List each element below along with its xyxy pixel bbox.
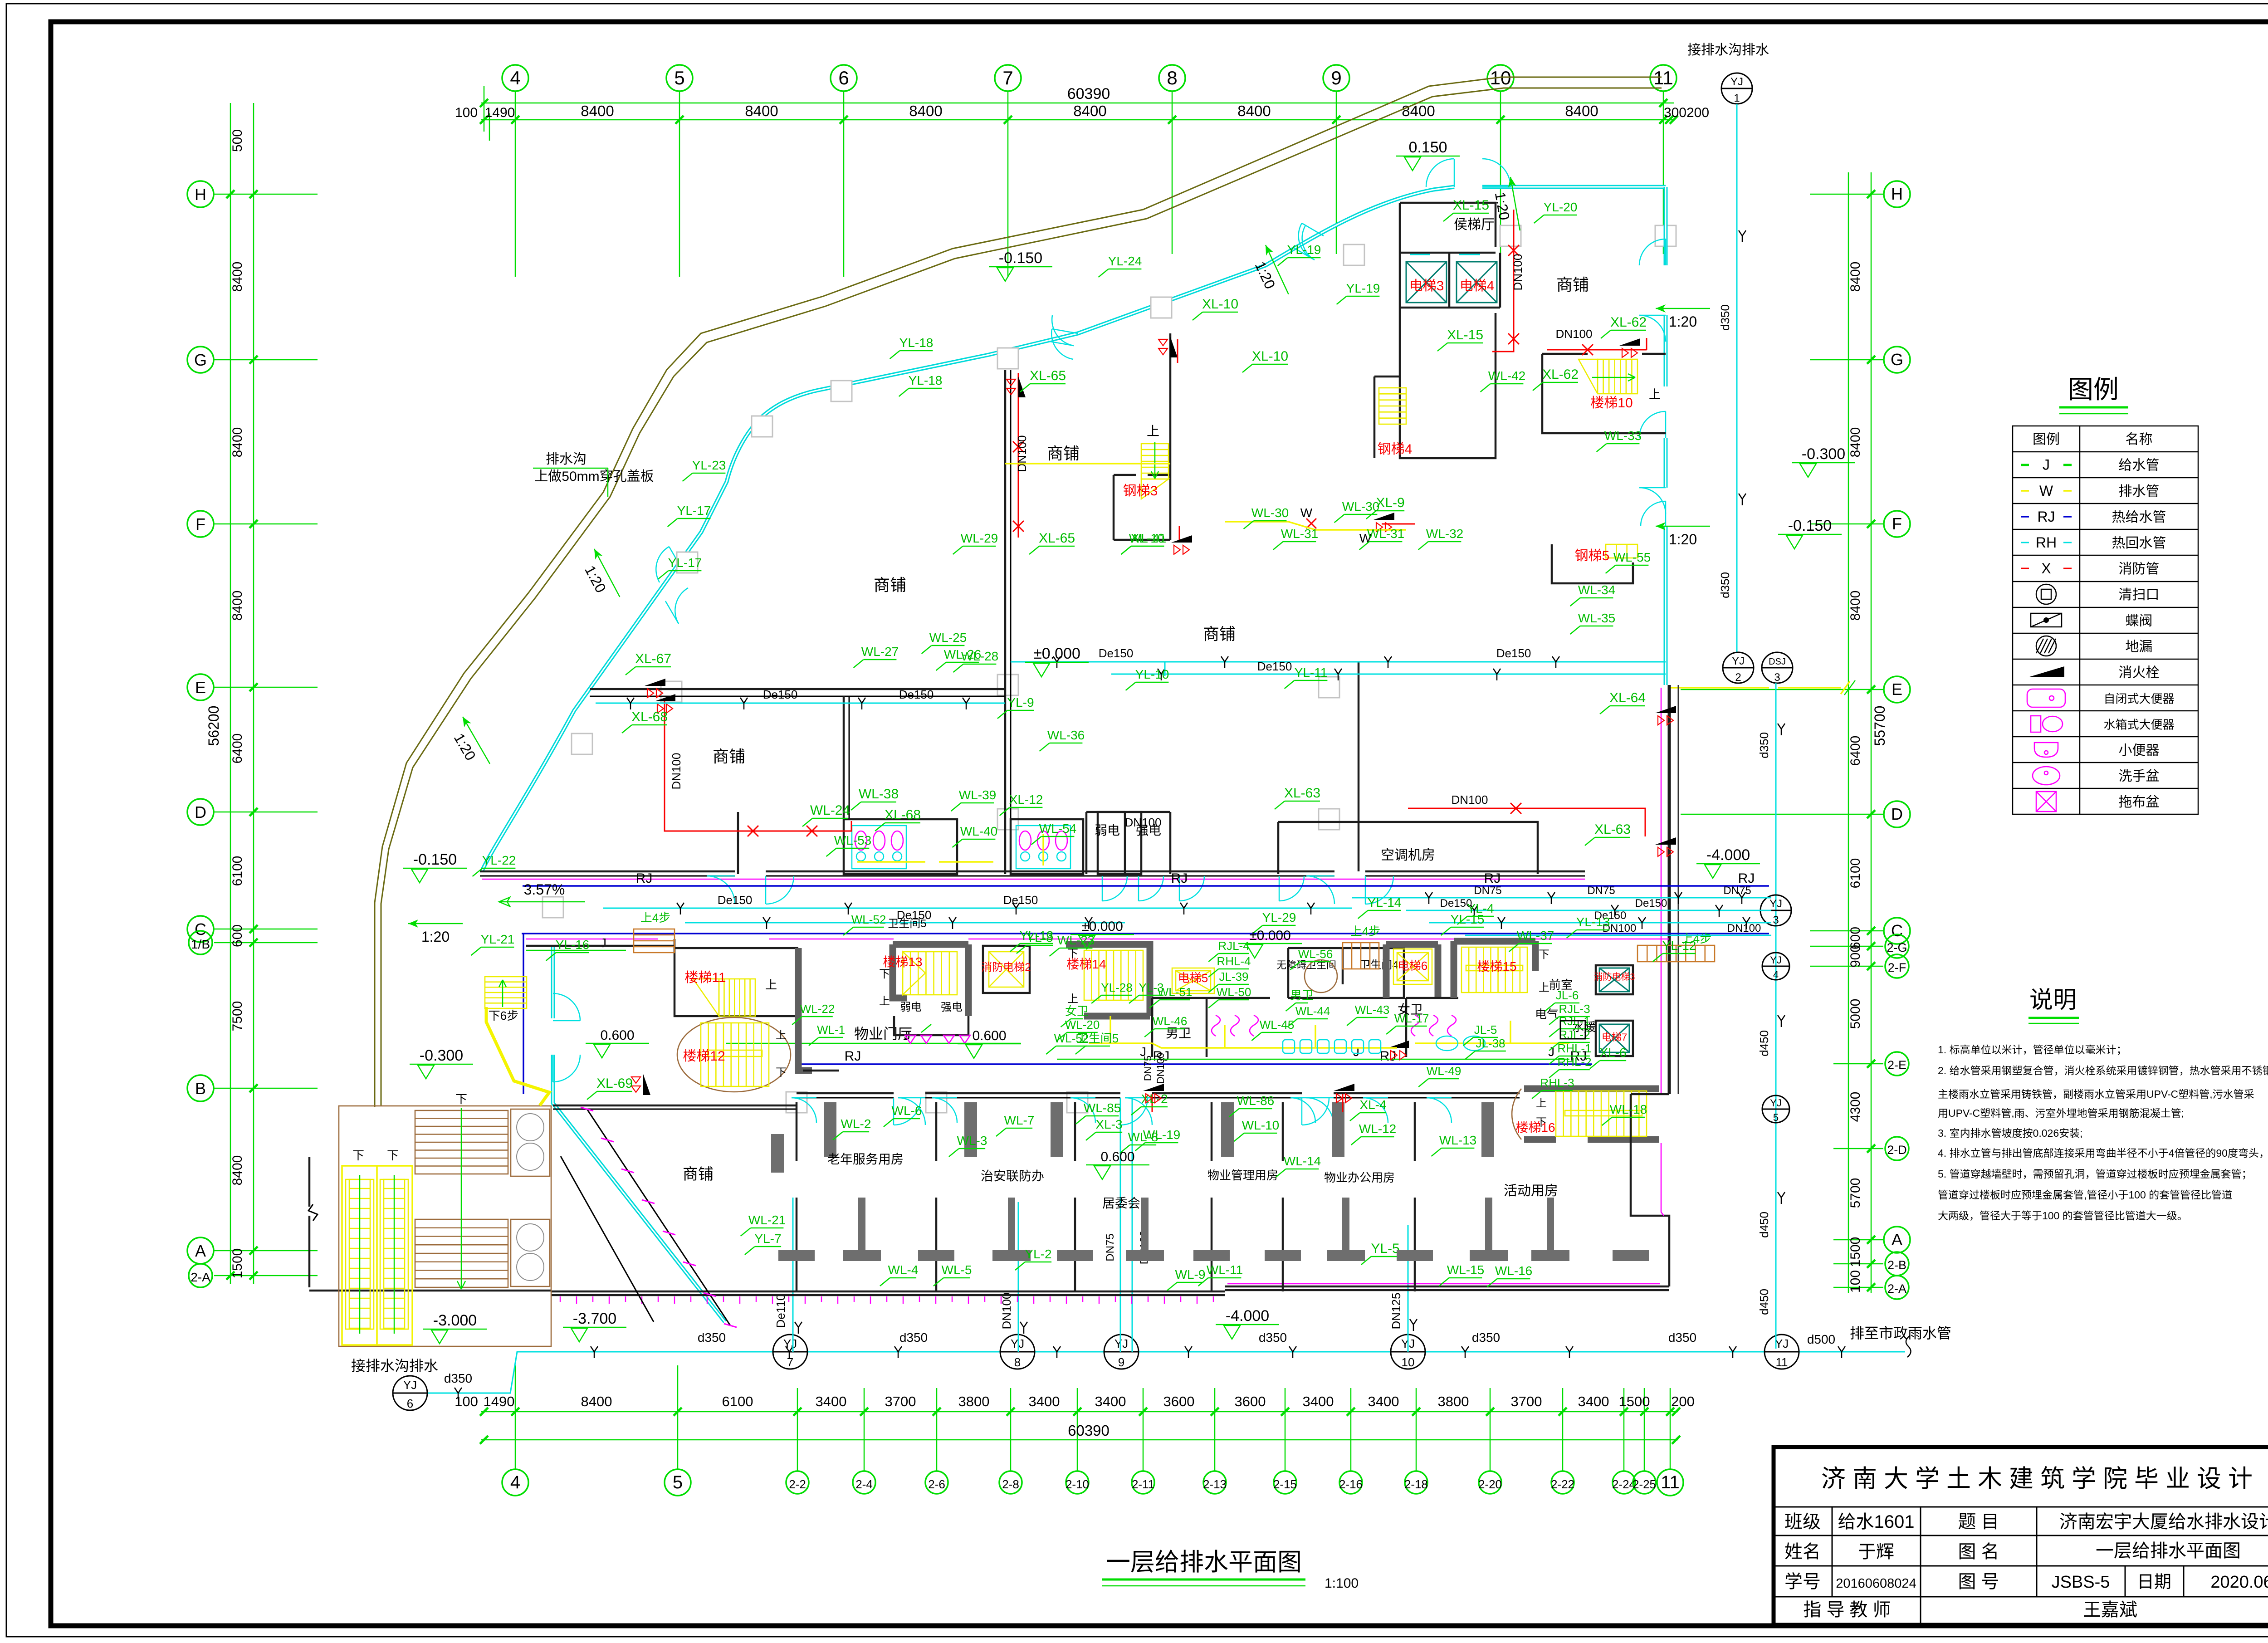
svg-text:DN100: DN100 — [1000, 1293, 1013, 1330]
svg-text:YL-4: YL-4 — [1467, 901, 1494, 915]
svg-text:XL-68: XL-68 — [885, 807, 921, 822]
svg-text:WL-51: WL-51 — [1158, 985, 1193, 999]
svg-text:3400: 3400 — [1368, 1394, 1399, 1409]
svg-text:WL-86: WL-86 — [1237, 1094, 1274, 1108]
svg-text:G: G — [194, 351, 207, 369]
svg-text:DN75: DN75 — [1142, 1056, 1154, 1081]
svg-text:d350: d350 — [1259, 1330, 1287, 1345]
svg-text:JL-39: JL-39 — [1219, 970, 1248, 983]
svg-text:6100: 6100 — [1848, 858, 1863, 889]
svg-text:9: 9 — [1118, 1355, 1124, 1369]
svg-text:WL-8: WL-8 — [1128, 1130, 1158, 1144]
svg-text:YL-18: YL-18 — [899, 336, 934, 350]
svg-text:WL-2: WL-2 — [841, 1117, 871, 1131]
svg-text:WL-11: WL-11 — [1207, 1263, 1243, 1277]
svg-text:4300: 4300 — [1848, 1092, 1863, 1122]
svg-text:WL-10: WL-10 — [1242, 1118, 1279, 1132]
svg-text:RJ: RJ — [2037, 509, 2055, 525]
svg-text:YL-18: YL-18 — [909, 373, 943, 387]
svg-text:0.150: 0.150 — [1408, 139, 1447, 156]
svg-text:d350: d350 — [1757, 732, 1771, 758]
svg-text:JL-6: JL-6 — [1556, 988, 1579, 1002]
svg-text:女卫: 女卫 — [1065, 1004, 1089, 1018]
svg-text:下: 下 — [455, 1092, 467, 1106]
svg-text:YL-29: YL-29 — [1262, 910, 1296, 924]
svg-text:排至市政雨水管: 排至市政雨水管 — [1850, 1325, 1951, 1341]
svg-text:3400: 3400 — [816, 1394, 847, 1409]
svg-text:XL-65: XL-65 — [1030, 368, 1066, 383]
svg-text:电梯6: 电梯6 — [1398, 959, 1427, 973]
svg-text:下: 下 — [879, 968, 890, 980]
svg-text:下: 下 — [1539, 949, 1549, 961]
svg-text:De150: De150 — [1003, 893, 1038, 907]
svg-text:8: 8 — [1014, 1355, 1021, 1369]
svg-text:消火栓: 消火栓 — [2119, 665, 2160, 680]
svg-text:DSJ: DSJ — [1769, 657, 1786, 667]
svg-text:居委会: 居委会 — [1102, 1196, 1140, 1210]
svg-text:消防电梯2: 消防电梯2 — [981, 961, 1031, 973]
svg-text:YL-28: YL-28 — [1101, 981, 1132, 994]
svg-text:De150: De150 — [718, 893, 753, 907]
svg-text:WL-9: WL-9 — [1175, 1267, 1206, 1281]
svg-text:管道穿过楼板时应预埋金属套管,管径小于100 的套管管径比管: 管道穿过楼板时应预埋金属套管,管径小于100 的套管管径比管道 — [1938, 1189, 2232, 1201]
svg-text:DN100: DN100 — [1155, 1053, 1166, 1084]
svg-text:RH: RH — [2036, 534, 2057, 551]
svg-text:上: 上 — [1147, 424, 1159, 438]
svg-text:-0.150: -0.150 — [1788, 517, 1832, 534]
svg-text:钢梯5: 钢梯5 — [1575, 548, 1610, 563]
svg-text:WL-15: WL-15 — [1447, 1263, 1484, 1277]
svg-text:WL-3: WL-3 — [957, 1134, 987, 1148]
svg-text:上: 上 — [1649, 387, 1661, 401]
svg-text:WL-39: WL-39 — [959, 788, 996, 802]
svg-text:100: 100 — [1848, 1270, 1863, 1293]
svg-text:2-18: 2-18 — [1404, 1477, 1428, 1491]
svg-text:YL-12: YL-12 — [1662, 939, 1696, 953]
svg-text:YL-20: YL-20 — [1544, 200, 1578, 214]
svg-text:-0.150: -0.150 — [413, 851, 457, 868]
svg-text:上: 上 — [765, 978, 777, 992]
svg-text:楼梯15: 楼梯15 — [1477, 959, 1516, 973]
svg-text:6: 6 — [838, 67, 849, 88]
svg-text:De150: De150 — [763, 688, 798, 701]
svg-text:8400: 8400 — [230, 427, 245, 458]
svg-text:3: 3 — [1773, 914, 1779, 926]
svg-text:电梯3: 电梯3 — [1409, 279, 1444, 293]
svg-text:卫生间5: 卫生间5 — [888, 918, 926, 930]
svg-text:WL-36: WL-36 — [1047, 728, 1085, 742]
svg-text:物业办公用房: 物业办公用房 — [1324, 1171, 1395, 1184]
svg-text:男卫: 男卫 — [1290, 988, 1314, 1002]
svg-text:WL-43: WL-43 — [1355, 1003, 1390, 1017]
svg-text:De150: De150 — [1099, 646, 1134, 660]
svg-text:治安联防办: 治安联防办 — [981, 1169, 1044, 1183]
svg-text:姓名: 姓名 — [1784, 1542, 1821, 1562]
svg-text:DN100: DN100 — [1727, 922, 1761, 934]
svg-text:900: 900 — [1848, 945, 1863, 968]
svg-text:WL-26: WL-26 — [944, 647, 981, 661]
svg-text:±0.000: ±0.000 — [1033, 645, 1080, 662]
svg-text:DN75: DN75 — [1587, 885, 1615, 897]
svg-text:2-A: 2-A — [191, 1270, 210, 1284]
svg-text:WL-30: WL-30 — [1342, 499, 1379, 513]
svg-text:电梯5: 电梯5 — [1178, 971, 1208, 985]
svg-text:WL-35: WL-35 — [1578, 611, 1615, 625]
svg-text:De110: De110 — [774, 1294, 787, 1328]
svg-text:WL-38: WL-38 — [859, 787, 899, 802]
svg-text:5: 5 — [674, 67, 684, 88]
svg-text:1:100: 1:100 — [1325, 1576, 1359, 1591]
svg-text:RJ: RJ — [1380, 1049, 1397, 1064]
svg-text:XL-65: XL-65 — [1039, 531, 1075, 546]
svg-text:WL-5: WL-5 — [942, 1263, 972, 1277]
svg-text:上: 上 — [1536, 1097, 1547, 1110]
svg-text:J: J — [1353, 1045, 1359, 1059]
svg-text:De150: De150 — [1635, 897, 1667, 910]
svg-text:一层给排水平面图: 一层给排水平面图 — [1106, 1549, 1302, 1576]
svg-text:-0.300: -0.300 — [1802, 445, 1845, 463]
svg-text:F: F — [196, 515, 205, 533]
svg-text:8: 8 — [1167, 67, 1177, 88]
svg-text:8400: 8400 — [230, 1155, 245, 1186]
svg-text:1:20: 1:20 — [421, 929, 450, 945]
svg-text:3600: 3600 — [1163, 1394, 1195, 1409]
svg-text:9: 9 — [1331, 67, 1341, 88]
svg-text:W: W — [2039, 483, 2053, 499]
svg-text:卫生间5: 卫生间5 — [1077, 1032, 1119, 1045]
svg-text:3800: 3800 — [1438, 1394, 1469, 1409]
svg-text:2-11: 2-11 — [1132, 1477, 1154, 1491]
svg-text:8400: 8400 — [909, 103, 942, 119]
svg-text:d450: d450 — [1757, 1030, 1771, 1056]
svg-text:WL-1: WL-1 — [817, 1023, 845, 1037]
svg-text:6: 6 — [407, 1397, 413, 1410]
svg-text:7: 7 — [1002, 67, 1013, 88]
svg-text:RJ: RJ — [636, 871, 653, 886]
svg-text:A: A — [1892, 1230, 1902, 1249]
svg-text:WL-25: WL-25 — [929, 631, 967, 645]
svg-text:JL-5: JL-5 — [1474, 1023, 1497, 1037]
svg-text:WL-12: WL-12 — [1359, 1122, 1396, 1136]
svg-text:4: 4 — [510, 67, 520, 88]
svg-text:2-E: 2-E — [1887, 1058, 1906, 1072]
svg-text:6400: 6400 — [1848, 736, 1863, 766]
svg-text:物业管理用房: 物业管理用房 — [1207, 1169, 1278, 1182]
svg-text:YL-7: YL-7 — [754, 1232, 781, 1246]
svg-text:20160608024: 20160608024 — [1836, 1576, 1916, 1591]
svg-text:H: H — [195, 185, 206, 204]
svg-text:0.600: 0.600 — [1100, 1149, 1134, 1164]
svg-text:XL-10: XL-10 — [1252, 349, 1288, 364]
svg-text:日期: 日期 — [2137, 1573, 2171, 1592]
svg-text:1490: 1490 — [485, 105, 515, 120]
svg-text:YJ: YJ — [1730, 76, 1743, 88]
svg-text:3700: 3700 — [1511, 1394, 1542, 1409]
svg-text:0.600: 0.600 — [972, 1028, 1006, 1043]
svg-text:上: 上 — [879, 995, 890, 1007]
svg-text:XL-12: XL-12 — [1009, 792, 1043, 807]
svg-text:YL-13: YL-13 — [1576, 915, 1610, 929]
svg-text:RHL-3: RHL-3 — [1540, 1076, 1574, 1090]
svg-text:200: 200 — [1671, 1394, 1695, 1409]
svg-text:7500: 7500 — [230, 1001, 245, 1032]
svg-text:班级: 班级 — [1784, 1512, 1821, 1532]
svg-text:男卫: 男卫 — [1166, 1026, 1191, 1040]
svg-text:3700: 3700 — [885, 1394, 916, 1409]
svg-text:物业门厅: 物业门厅 — [854, 1026, 912, 1042]
svg-text:d350: d350 — [1718, 304, 1732, 331]
svg-text:WL-21: WL-21 — [748, 1213, 786, 1227]
svg-text:3400: 3400 — [1578, 1394, 1609, 1409]
svg-text:5: 5 — [1773, 1112, 1779, 1123]
svg-text:商铺: 商铺 — [683, 1166, 714, 1183]
svg-text:上: 上 — [776, 1029, 787, 1042]
svg-text:500: 500 — [230, 129, 245, 152]
svg-text:-3.700: -3.700 — [573, 1310, 616, 1327]
svg-text:上: 上 — [1067, 993, 1078, 1005]
svg-text:2-16: 2-16 — [1339, 1477, 1363, 1491]
svg-text:济南宏宇大厦给水排水设计: 济南宏宇大厦给水排水设计 — [2059, 1512, 2268, 1532]
svg-text:WL-45: WL-45 — [1260, 1018, 1295, 1032]
svg-text:WL-18: WL-18 — [1610, 1102, 1647, 1116]
svg-text:YJ: YJ — [783, 1337, 797, 1350]
svg-text:WL-24: WL-24 — [810, 803, 850, 818]
svg-text:DN100: DN100 — [1015, 435, 1029, 472]
svg-text:DN125: DN125 — [1389, 1293, 1403, 1330]
svg-text:d450: d450 — [1757, 1289, 1771, 1315]
svg-text:-0.300: -0.300 — [420, 1047, 463, 1064]
svg-text:YL-2: YL-2 — [1025, 1247, 1051, 1261]
svg-text:4: 4 — [1773, 969, 1779, 980]
svg-text:排水沟: 排水沟 — [546, 452, 587, 467]
svg-text:YJ: YJ — [1011, 1337, 1024, 1350]
svg-text:钢梯3: 钢梯3 — [1123, 484, 1158, 499]
svg-text:5700: 5700 — [1848, 1178, 1863, 1208]
svg-text:WL-13: WL-13 — [1439, 1133, 1476, 1147]
svg-text:4. 排水立管与排出管底部连接采用弯曲半径不小于4倍管径的9: 4. 排水立管与排出管底部连接采用弯曲半径不小于4倍管径的90度弯头， — [1938, 1147, 2268, 1159]
svg-text:JL-38: JL-38 — [1476, 1037, 1505, 1050]
svg-text:YL-19: YL-19 — [1287, 243, 1321, 257]
svg-text:RHL-4: RHL-4 — [1217, 954, 1251, 968]
svg-text:WL-56: WL-56 — [1298, 947, 1333, 961]
svg-text:J: J — [600, 936, 606, 950]
svg-text:±0.000: ±0.000 — [1249, 928, 1291, 943]
svg-text:8400: 8400 — [230, 591, 245, 621]
svg-text:WL-85: WL-85 — [1084, 1101, 1121, 1115]
svg-text:YL-11: YL-11 — [1295, 665, 1328, 680]
svg-text:XL-15: XL-15 — [1453, 198, 1489, 213]
svg-text:YL-17: YL-17 — [668, 556, 702, 570]
svg-text:XL-9: XL-9 — [1376, 495, 1404, 510]
svg-text:56200: 56200 — [205, 706, 222, 746]
svg-text:2020.06: 2020.06 — [2210, 1573, 2268, 1592]
svg-text:G: G — [1891, 350, 1903, 369]
svg-text:XL-67: XL-67 — [635, 651, 671, 666]
svg-text:D: D — [1891, 805, 1903, 823]
svg-text:1490: 1490 — [484, 1394, 515, 1409]
svg-text:题 目: 题 目 — [1958, 1512, 1999, 1532]
svg-text:YL-10: YL-10 — [1135, 667, 1169, 681]
svg-text:楼梯13: 楼梯13 — [883, 955, 922, 969]
svg-text:XL-3: XL-3 — [1095, 1117, 1122, 1131]
svg-text:老年服务用房: 老年服务用房 — [827, 1152, 904, 1166]
svg-text:H: H — [1891, 185, 1903, 203]
svg-text:DN75: DN75 — [1723, 885, 1751, 897]
svg-text:D: D — [195, 803, 206, 821]
svg-text:DN100: DN100 — [1125, 816, 1162, 829]
svg-text:清扫口: 清扫口 — [2119, 587, 2160, 602]
svg-text:11: 11 — [1776, 1355, 1788, 1369]
svg-text:3400: 3400 — [1095, 1394, 1126, 1409]
svg-text:E: E — [195, 678, 206, 697]
svg-text:名称: 名称 — [2126, 432, 2153, 447]
svg-text:2. 给水管采用钢塑复合管，消火栓系统采用镀锌钢管，热水管采: 2. 给水管采用钢塑复合管，消火栓系统采用镀锌钢管，热水管采用不锈钢管； — [1938, 1065, 2268, 1076]
svg-text:YJ: YJ — [1775, 1337, 1789, 1350]
svg-text:指 导 教 师: 指 导 教 师 — [1803, 1600, 1891, 1620]
svg-text:XL-62: XL-62 — [1610, 315, 1647, 330]
svg-text:E: E — [1892, 680, 1902, 699]
svg-text:水箱式大便器: 水箱式大便器 — [2103, 718, 2174, 732]
svg-text:d350: d350 — [444, 1371, 472, 1385]
svg-text:热回水管: 热回水管 — [2112, 536, 2166, 551]
svg-text:4: 4 — [510, 1472, 520, 1492]
svg-text:YL-16: YL-16 — [556, 938, 590, 952]
svg-text:YL-21: YL-21 — [481, 932, 515, 946]
svg-text:C: C — [195, 920, 206, 939]
svg-text:RJL-4: RJL-4 — [1218, 939, 1249, 953]
svg-text:XL-69: XL-69 — [596, 1076, 633, 1091]
svg-text:图例: 图例 — [2068, 375, 2119, 404]
svg-text:8400: 8400 — [230, 262, 245, 292]
svg-text:10: 10 — [1402, 1355, 1415, 1369]
svg-text:热给水管: 热给水管 — [2112, 510, 2166, 525]
svg-text:YL-14: YL-14 — [1368, 895, 1402, 910]
svg-text:2-22: 2-22 — [1551, 1477, 1574, 1491]
svg-text:±0.000: ±0.000 — [1081, 919, 1123, 934]
svg-text:RJ: RJ — [1171, 871, 1188, 886]
svg-text:1500: 1500 — [230, 1248, 245, 1279]
svg-text:YJ: YJ — [403, 1378, 417, 1392]
svg-text:下: 下 — [352, 1149, 364, 1162]
svg-text:大两级，管径大于等于100 的套管管径比管道大一级。: 大两级，管径大于等于100 的套管管径比管道大一级。 — [1938, 1210, 2188, 1222]
svg-text:WL-46: WL-46 — [1153, 1014, 1188, 1028]
svg-text:1:20: 1:20 — [1669, 531, 1697, 548]
svg-text:WL-31: WL-31 — [1281, 527, 1318, 541]
svg-text:YL-24: YL-24 — [1108, 254, 1142, 268]
svg-text:8400: 8400 — [1565, 103, 1598, 119]
svg-text:5. 管道穿越墙壁时，需预留孔洞，管道穿过楼板时应预埋金属套: 5. 管道穿越墙壁时，需预留孔洞，管道穿过楼板时应预埋金属套管； — [1938, 1168, 2252, 1180]
svg-text:WL-34: WL-34 — [1578, 583, 1615, 597]
svg-text:YL-13: YL-13 — [1020, 929, 1054, 943]
svg-text:钢梯4: 钢梯4 — [1378, 442, 1413, 457]
svg-text:8400: 8400 — [1848, 262, 1863, 292]
svg-text:WL-42: WL-42 — [1488, 369, 1525, 383]
svg-text:WL-27: WL-27 — [861, 645, 899, 659]
svg-text:XL-4: XL-4 — [1359, 1098, 1386, 1112]
svg-text:WL-41: WL-41 — [1129, 531, 1166, 545]
svg-text:WL-4: WL-4 — [888, 1263, 919, 1277]
svg-text:上4步: 上4步 — [1350, 924, 1380, 938]
svg-text:YJ: YJ — [1770, 1097, 1782, 1109]
svg-text:WL-22: WL-22 — [800, 1002, 835, 1016]
svg-text:楼梯10: 楼梯10 — [1590, 396, 1633, 411]
svg-text:自闭式大便器: 自闭式大便器 — [2103, 692, 2174, 706]
svg-text:WL-30: WL-30 — [1251, 506, 1289, 520]
svg-text:d350: d350 — [1472, 1330, 1500, 1345]
svg-text:d350: d350 — [698, 1330, 726, 1345]
svg-text:空调机房: 空调机房 — [1381, 848, 1435, 863]
svg-text:5: 5 — [673, 1472, 683, 1492]
svg-text:XL-64: XL-64 — [1609, 690, 1646, 705]
svg-text:YL-22: YL-22 — [482, 853, 516, 867]
svg-text:拖布盆: 拖布盆 — [2119, 795, 2160, 810]
svg-text:6100: 6100 — [722, 1394, 753, 1409]
svg-text:2-B: 2-B — [1887, 1258, 1906, 1272]
svg-text:2: 2 — [1735, 671, 1741, 684]
svg-text:8400: 8400 — [1073, 103, 1106, 119]
svg-text:1500: 1500 — [1619, 1394, 1650, 1409]
svg-text:说明: 说明 — [2029, 987, 2077, 1013]
svg-text:WL-6: WL-6 — [892, 1104, 922, 1118]
svg-text:2-8: 2-8 — [1002, 1477, 1019, 1491]
svg-text:消防管: 消防管 — [2119, 562, 2160, 577]
svg-text:-0.150: -0.150 — [999, 249, 1042, 267]
svg-text:-4.000: -4.000 — [1226, 1307, 1269, 1325]
svg-text:YJ: YJ — [1769, 898, 1782, 910]
svg-text:De150: De150 — [1257, 660, 1292, 673]
svg-text:楼梯12: 楼梯12 — [683, 1049, 725, 1064]
svg-text:WL-49: WL-49 — [1427, 1064, 1461, 1078]
svg-text:学号: 学号 — [1784, 1572, 1821, 1592]
svg-text:王嘉斌: 王嘉斌 — [2083, 1600, 2137, 1620]
svg-text:600: 600 — [230, 924, 245, 947]
svg-text:YL-17: YL-17 — [677, 504, 711, 518]
svg-text:上: 上 — [1539, 982, 1549, 994]
svg-text:WL-7: WL-7 — [1004, 1113, 1035, 1127]
svg-text:强电: 强电 — [941, 1001, 963, 1013]
svg-text:WL-40: WL-40 — [960, 824, 997, 838]
svg-text:WL-29: WL-29 — [961, 531, 998, 545]
svg-text:给水1601: 给水1601 — [1838, 1512, 1915, 1532]
svg-text:3. 室内排水管坡度按0.026安装;: 3. 室内排水管坡度按0.026安装; — [1938, 1127, 2083, 1139]
svg-text:下: 下 — [1536, 1116, 1547, 1129]
svg-text:DN75: DN75 — [1104, 1233, 1116, 1261]
svg-text:WL-16: WL-16 — [1495, 1264, 1532, 1278]
svg-text:图 名: 图 名 — [1958, 1542, 1999, 1562]
svg-text:弱电: 弱电 — [1095, 823, 1120, 837]
svg-text:DN100: DN100 — [1511, 254, 1525, 291]
svg-text:2-F: 2-F — [1888, 961, 1906, 974]
svg-text:X: X — [2041, 560, 2051, 577]
svg-text:2-15: 2-15 — [1273, 1477, 1297, 1491]
svg-text:于辉: 于辉 — [1858, 1542, 1894, 1562]
svg-text:1/B: 1/B — [191, 937, 210, 951]
svg-text:B: B — [195, 1079, 206, 1098]
svg-text:WL-33: WL-33 — [1604, 429, 1642, 443]
svg-text:商铺: 商铺 — [1203, 625, 1236, 643]
svg-text:一层给排水平面图: 一层给排水平面图 — [2096, 1541, 2241, 1561]
svg-text:2-20: 2-20 — [1478, 1477, 1502, 1491]
svg-text:8400: 8400 — [1402, 103, 1435, 119]
svg-text:上4步: 上4步 — [640, 911, 670, 924]
svg-text:8400: 8400 — [1848, 427, 1863, 458]
svg-text:小便器: 小便器 — [2119, 743, 2160, 758]
svg-text:接排水沟排水: 接排水沟排水 — [351, 1358, 438, 1374]
svg-text:7: 7 — [787, 1355, 793, 1369]
svg-text:WL-31: WL-31 — [1367, 527, 1404, 541]
svg-text:DN100: DN100 — [1556, 327, 1593, 341]
svg-text:d350: d350 — [1668, 1330, 1696, 1345]
